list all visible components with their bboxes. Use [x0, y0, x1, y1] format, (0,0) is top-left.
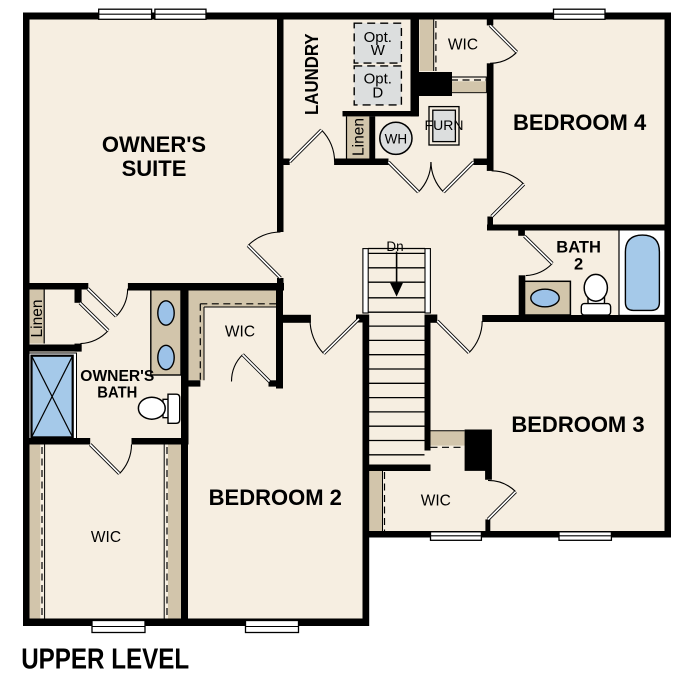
svg-text:WIC: WIC: [225, 324, 255, 341]
svg-text:WH: WH: [385, 131, 408, 146]
svg-text:D: D: [372, 84, 383, 101]
svg-text:BEDROOM 4: BEDROOM 4: [513, 110, 647, 135]
svg-text:UPPER LEVEL: UPPER LEVEL: [21, 644, 189, 676]
svg-text:WIC: WIC: [91, 529, 121, 546]
svg-text:WIC: WIC: [448, 36, 478, 53]
svg-text:BATH: BATH: [556, 239, 601, 257]
svg-text:SUITE: SUITE: [122, 156, 187, 181]
svg-text:W: W: [371, 42, 386, 59]
svg-text:BEDROOM 3: BEDROOM 3: [511, 412, 644, 437]
svg-text:OWNER'S: OWNER'S: [80, 368, 154, 385]
svg-text:OWNER'S: OWNER'S: [102, 132, 206, 157]
svg-text:Linen: Linen: [29, 300, 46, 338]
svg-text:Linen: Linen: [351, 118, 368, 156]
svg-text:BEDROOM 2: BEDROOM 2: [209, 485, 342, 510]
svg-text:2: 2: [574, 255, 583, 273]
svg-text:WIC: WIC: [421, 493, 451, 510]
svg-text:Dn: Dn: [386, 239, 403, 254]
svg-text:FURN: FURN: [425, 117, 464, 133]
svg-text:BATH: BATH: [97, 385, 137, 402]
svg-text:LAUNDRY: LAUNDRY: [302, 33, 322, 115]
